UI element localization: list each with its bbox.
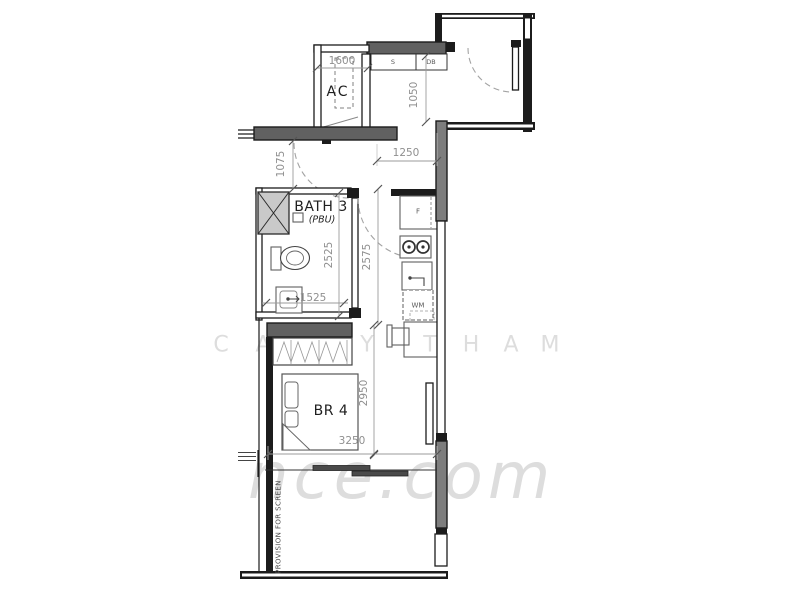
- label-layer: AC 1600 S DB 1050 1250 1075 BATH 3 (PBU)…: [0, 0, 800, 600]
- provision-note: PROVISION FOR SCREEN: [276, 480, 283, 574]
- dim-bath-width: 1525: [300, 293, 327, 304]
- dim-kitchen-width: 1250: [393, 148, 420, 159]
- dim-entry-depth: 1050: [409, 82, 420, 109]
- db-label: DB: [426, 59, 435, 66]
- room-label-ac: AC: [326, 85, 349, 99]
- dim-bedroom-length: 2950: [359, 380, 370, 407]
- floor-plan-page: C A Y T H A M nce.com: [0, 0, 800, 600]
- dim-ac-ledge: 1600: [329, 56, 356, 67]
- dim-bath-length: 2525: [324, 242, 335, 269]
- switch-label: S: [391, 59, 395, 66]
- dim-bedroom-width: 3250: [339, 436, 366, 447]
- room-label-bath-sub: (PBU): [309, 215, 336, 225]
- dim-foyer: 1075: [276, 151, 287, 178]
- room-label-bedroom: BR 4: [314, 404, 349, 418]
- dim-corridor-length: 2575: [362, 244, 373, 271]
- fridge-label: F: [416, 209, 420, 216]
- room-label-bath: BATH 3: [294, 200, 348, 214]
- washer-label: WM: [412, 303, 425, 310]
